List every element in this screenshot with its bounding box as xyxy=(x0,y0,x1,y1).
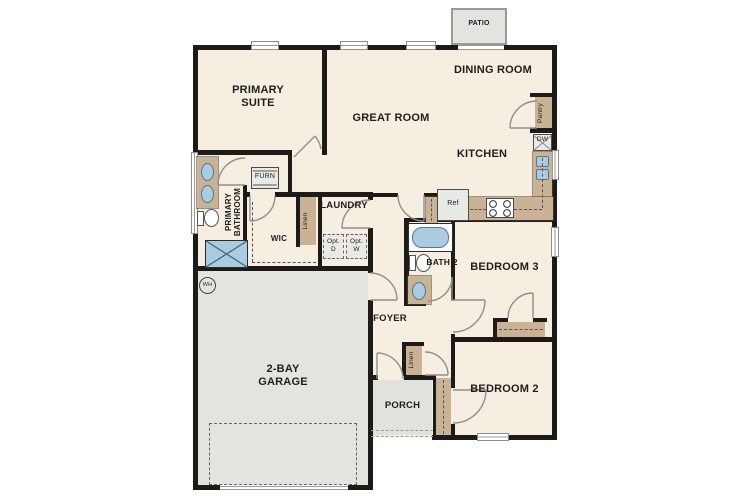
wall-top-right xyxy=(504,45,557,50)
wall-left-upper xyxy=(193,50,198,152)
wall-wic-top-b xyxy=(275,192,373,197)
window-dining xyxy=(406,41,436,50)
label-primary-suite: PRIMARY SUITE xyxy=(227,84,289,110)
primary-sink-2 xyxy=(201,185,214,203)
porch-strip-dash xyxy=(443,380,444,434)
counter-dash-2 xyxy=(514,209,542,210)
label-bath2: BATH 2 xyxy=(426,257,458,267)
label-linen-foyer: Linen xyxy=(408,346,420,374)
wall-bed2-bottom-right xyxy=(509,435,557,440)
label-great-room: GREAT ROOM xyxy=(341,112,441,125)
counter-strip-dash xyxy=(431,199,432,221)
window-great-room xyxy=(340,41,368,50)
bath2-tub xyxy=(412,227,449,248)
wall-bed2-left-b xyxy=(451,424,455,440)
label-laundry: LAUNDRY xyxy=(319,200,369,211)
label-linen-hall: Linen xyxy=(302,206,314,236)
label-dishwasher: DW xyxy=(533,136,552,144)
wall-right-lower xyxy=(552,257,557,440)
label-wic: WIC xyxy=(262,234,296,243)
wall-suite-right xyxy=(322,50,327,155)
label-refrigerator: Ref xyxy=(437,200,469,208)
wall-suite-bottom xyxy=(197,150,292,155)
floor-plan: PATIO DINING ROOM PRIMARY SUITE GREAT RO… xyxy=(0,0,750,500)
counter-dash-3 xyxy=(542,158,543,208)
label-kitchen: KITCHEN xyxy=(441,148,523,161)
garage-overhead-door xyxy=(220,486,348,490)
label-garage: 2-BAY GARAGE xyxy=(248,363,318,389)
bath2-toilet-tank xyxy=(409,255,416,271)
wall-front-b xyxy=(404,375,436,380)
wall-pantry-bottom xyxy=(530,128,557,133)
counter-dash-1 xyxy=(470,209,486,210)
wall-bed3-bottom xyxy=(451,337,557,342)
primary-sink-1 xyxy=(201,163,214,181)
label-patio: PATIO xyxy=(451,20,507,28)
label-porch: PORCH xyxy=(375,400,430,411)
wall-left-lower xyxy=(193,234,198,490)
label-bedroom2: BEDROOM 2 xyxy=(457,383,552,396)
wall-front-a xyxy=(368,375,378,380)
garage-door-dashed-zone xyxy=(209,423,357,485)
label-primary-bath: PRIMARY BATHROOM xyxy=(224,186,248,238)
range-box xyxy=(486,198,514,218)
label-pantry: Pantry xyxy=(537,99,551,127)
label-dining: DINING ROOM xyxy=(447,64,539,77)
label-water-heater: WH xyxy=(199,282,216,288)
window-primary-suite xyxy=(251,41,279,50)
wall-garage-bottom-left xyxy=(193,485,220,490)
label-foyer: FOYER xyxy=(366,313,414,324)
wall-furn-closet xyxy=(288,155,292,196)
bed3-closet-rod-dash xyxy=(499,329,543,330)
primary-shower xyxy=(205,240,248,268)
patio-sliding-door xyxy=(458,45,504,50)
wall-hall-top-a xyxy=(373,193,398,197)
primary-toilet-bowl xyxy=(204,209,219,227)
wall-right-upper xyxy=(552,45,557,150)
window-bedroom3 xyxy=(551,227,559,257)
label-bedroom3: BEDROOM 3 xyxy=(457,261,552,274)
primary-toilet-tank xyxy=(197,211,204,226)
wall-garage-right-b xyxy=(368,228,373,273)
label-opt-dryer: Opt. D xyxy=(324,238,343,253)
window-kitchen-sink xyxy=(551,150,559,180)
wall-garage-right-c xyxy=(368,300,373,490)
window-bedroom2 xyxy=(477,433,509,441)
wall-bed2-left-a xyxy=(451,342,455,388)
label-furnace: FURN xyxy=(251,173,279,181)
bath2-sink xyxy=(412,282,426,300)
wic-shelf-dash-bottom xyxy=(252,262,316,263)
porch-edge-dashes xyxy=(371,430,433,437)
label-opt-washer: Opt. W xyxy=(347,238,366,253)
wic-shelf-dash-left xyxy=(252,202,253,262)
